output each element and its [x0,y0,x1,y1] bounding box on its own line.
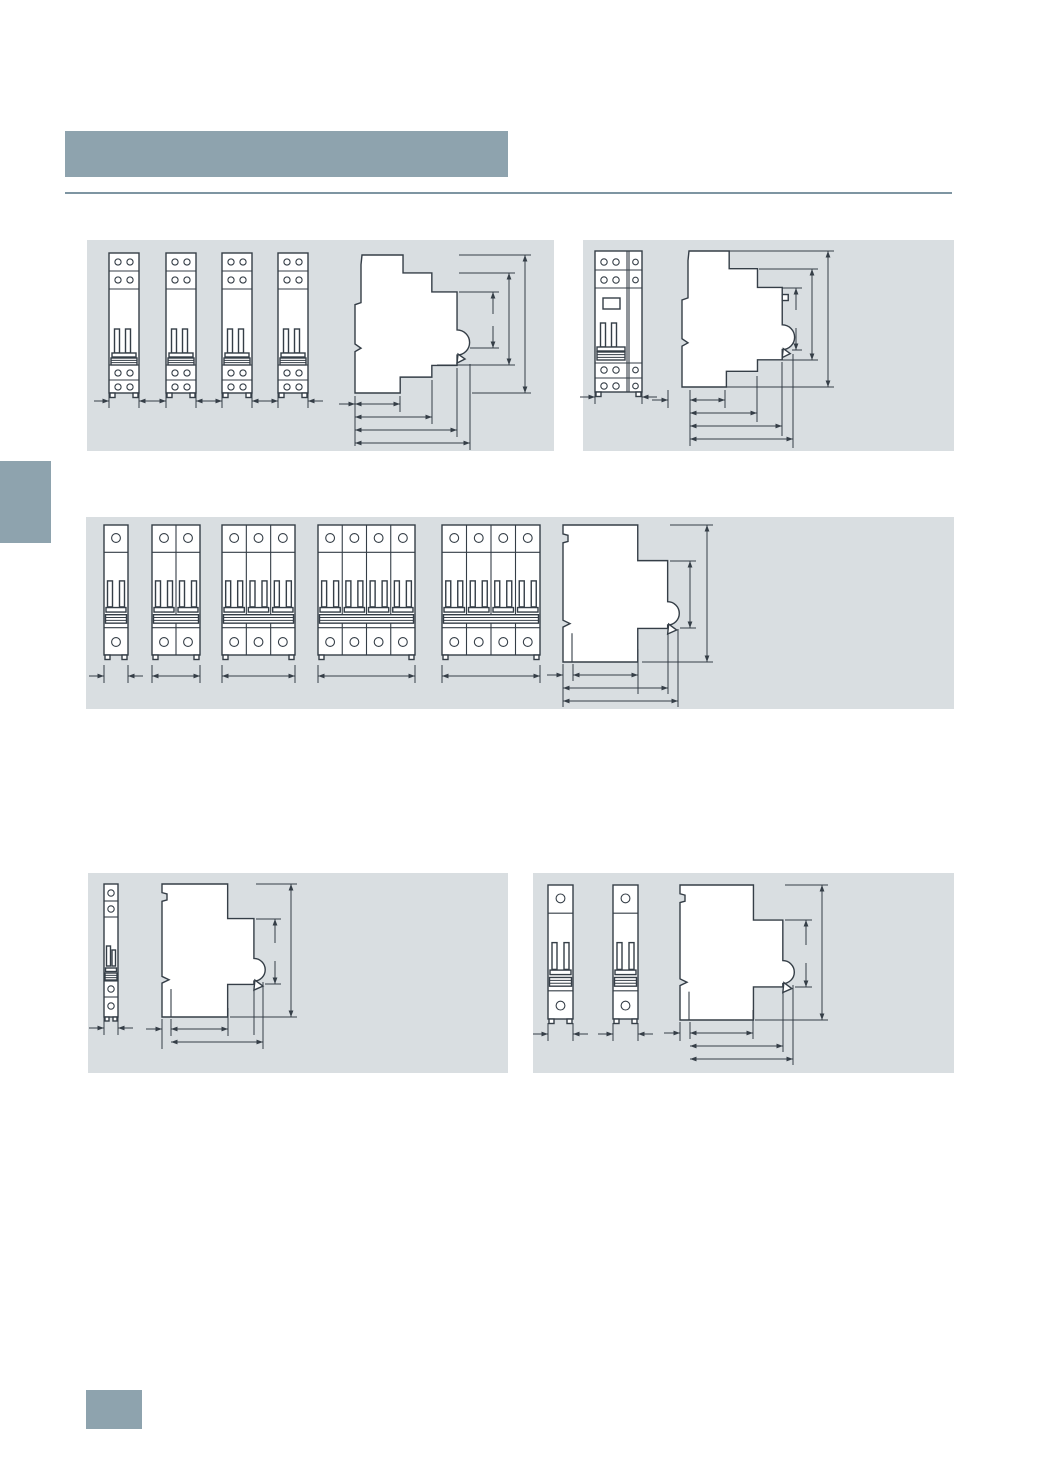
breaker-front-view-dd [222,253,252,398]
header-rule [65,192,952,194]
breaker-front-view-std-1module [613,885,638,1024]
page-number-block [86,1390,142,1429]
breaker-front-view-std-1module [104,525,128,660]
breaker-front-view-half [104,884,118,1021]
breaker-side-profile-mcb [680,885,794,1020]
middle-dimension-drawing [86,517,954,709]
drawing-panel-bottom-left [88,873,508,1073]
breaker-front-view-std-2module [152,525,200,660]
breaker-side-profile-mcb [563,525,679,662]
drawing-panel-top-left [87,240,554,451]
bottom-right-dimension-drawing [533,873,954,1073]
breaker-front-view-dd [278,253,308,398]
breaker-side-profile-rcbo [682,251,795,387]
section-title-bar [65,131,508,177]
breaker-front-view-std-4module [442,525,540,660]
breaker-side-profile-rcbo [355,255,470,393]
drawing-panel-top-right [583,240,954,451]
drawing-panel-bottom-right [533,873,954,1073]
breaker-front-view-dd [109,253,139,398]
top-left-dimension-drawing [87,240,554,451]
breaker-front-view-std-4module [318,525,415,660]
edge-index-tab [0,461,51,543]
breaker-front-view-std-1module [548,885,573,1024]
breaker-side-profile-mcb [162,884,265,1017]
breaker-front-view-rcbo [595,251,642,397]
breaker-front-view-dd [166,253,196,398]
drawing-panel-middle [86,517,954,709]
breaker-front-view-std-3module [222,525,295,660]
bottom-left-dimension-drawing [88,873,508,1073]
top-right-dimension-drawing [583,240,954,451]
catalog-page [0,0,1041,1472]
